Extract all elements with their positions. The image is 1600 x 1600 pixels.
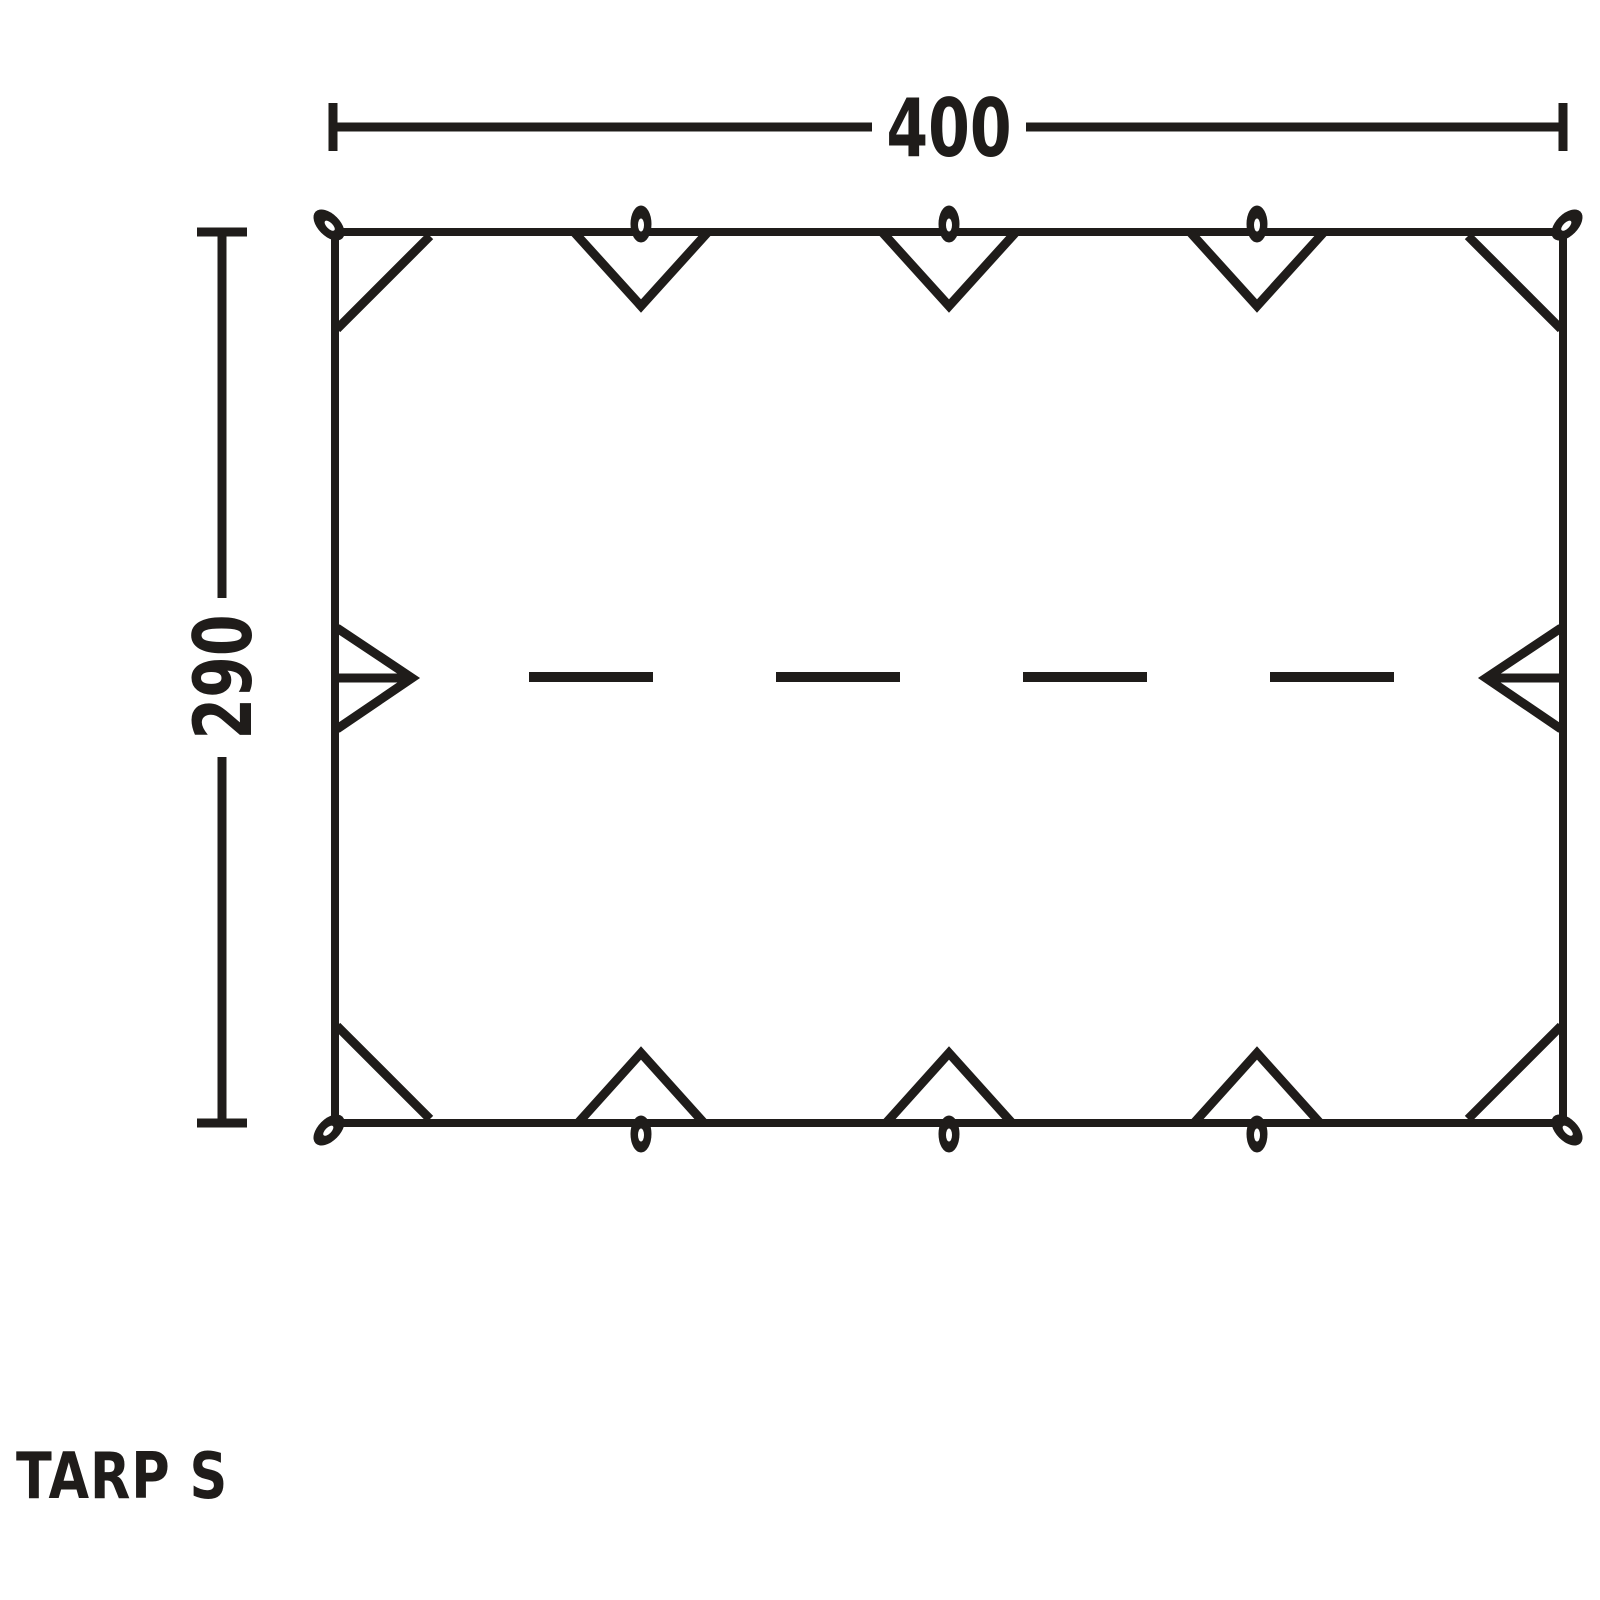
bottom-edge-tieout-triangles [578, 1053, 1320, 1123]
height-dimension-label: 290 [176, 614, 270, 739]
height-dimension-line: 290 [176, 232, 270, 1123]
corner-reinforcement-bottom-left [337, 1026, 430, 1119]
tieout-triangle-bottom-2 [886, 1053, 1012, 1123]
guy-loop-icon [631, 206, 652, 243]
tieout-triangle-top-2 [882, 232, 1016, 306]
tieout-triangle-bottom-1 [578, 1053, 704, 1123]
tarp-spec-diagram: 400 290 [0, 0, 1600, 1600]
product-title: TARP S [16, 1439, 228, 1513]
side-tieout-arrow-right [1486, 628, 1561, 729]
guy-loop-icon [939, 1116, 960, 1153]
guy-loop-icon [308, 204, 350, 246]
tieout-triangle-bottom-3 [1194, 1053, 1320, 1123]
top-edge-tieout-triangles [574, 232, 1324, 306]
corner-reinforcement-top-right [1468, 236, 1561, 329]
width-dimension-label: 400 [886, 81, 1011, 175]
guy-loop-icon [631, 1116, 652, 1153]
width-dimension-line: 400 [333, 81, 1563, 175]
tarp-diagram-canvas: 400 290 [0, 0, 1600, 1600]
corner-reinforcement-top-left [337, 236, 430, 329]
side-tieout-arrow-left [337, 628, 412, 729]
guy-loop-icon [939, 206, 960, 243]
guy-loop-icon [308, 1109, 350, 1151]
tieout-triangle-top-1 [574, 232, 708, 306]
tieout-triangle-top-3 [1190, 232, 1324, 306]
guy-loop-icon [1247, 206, 1268, 243]
corner-reinforcement-bottom-right [1468, 1026, 1561, 1119]
guy-loop-icon [1247, 1116, 1268, 1153]
guy-loops [308, 204, 1588, 1153]
